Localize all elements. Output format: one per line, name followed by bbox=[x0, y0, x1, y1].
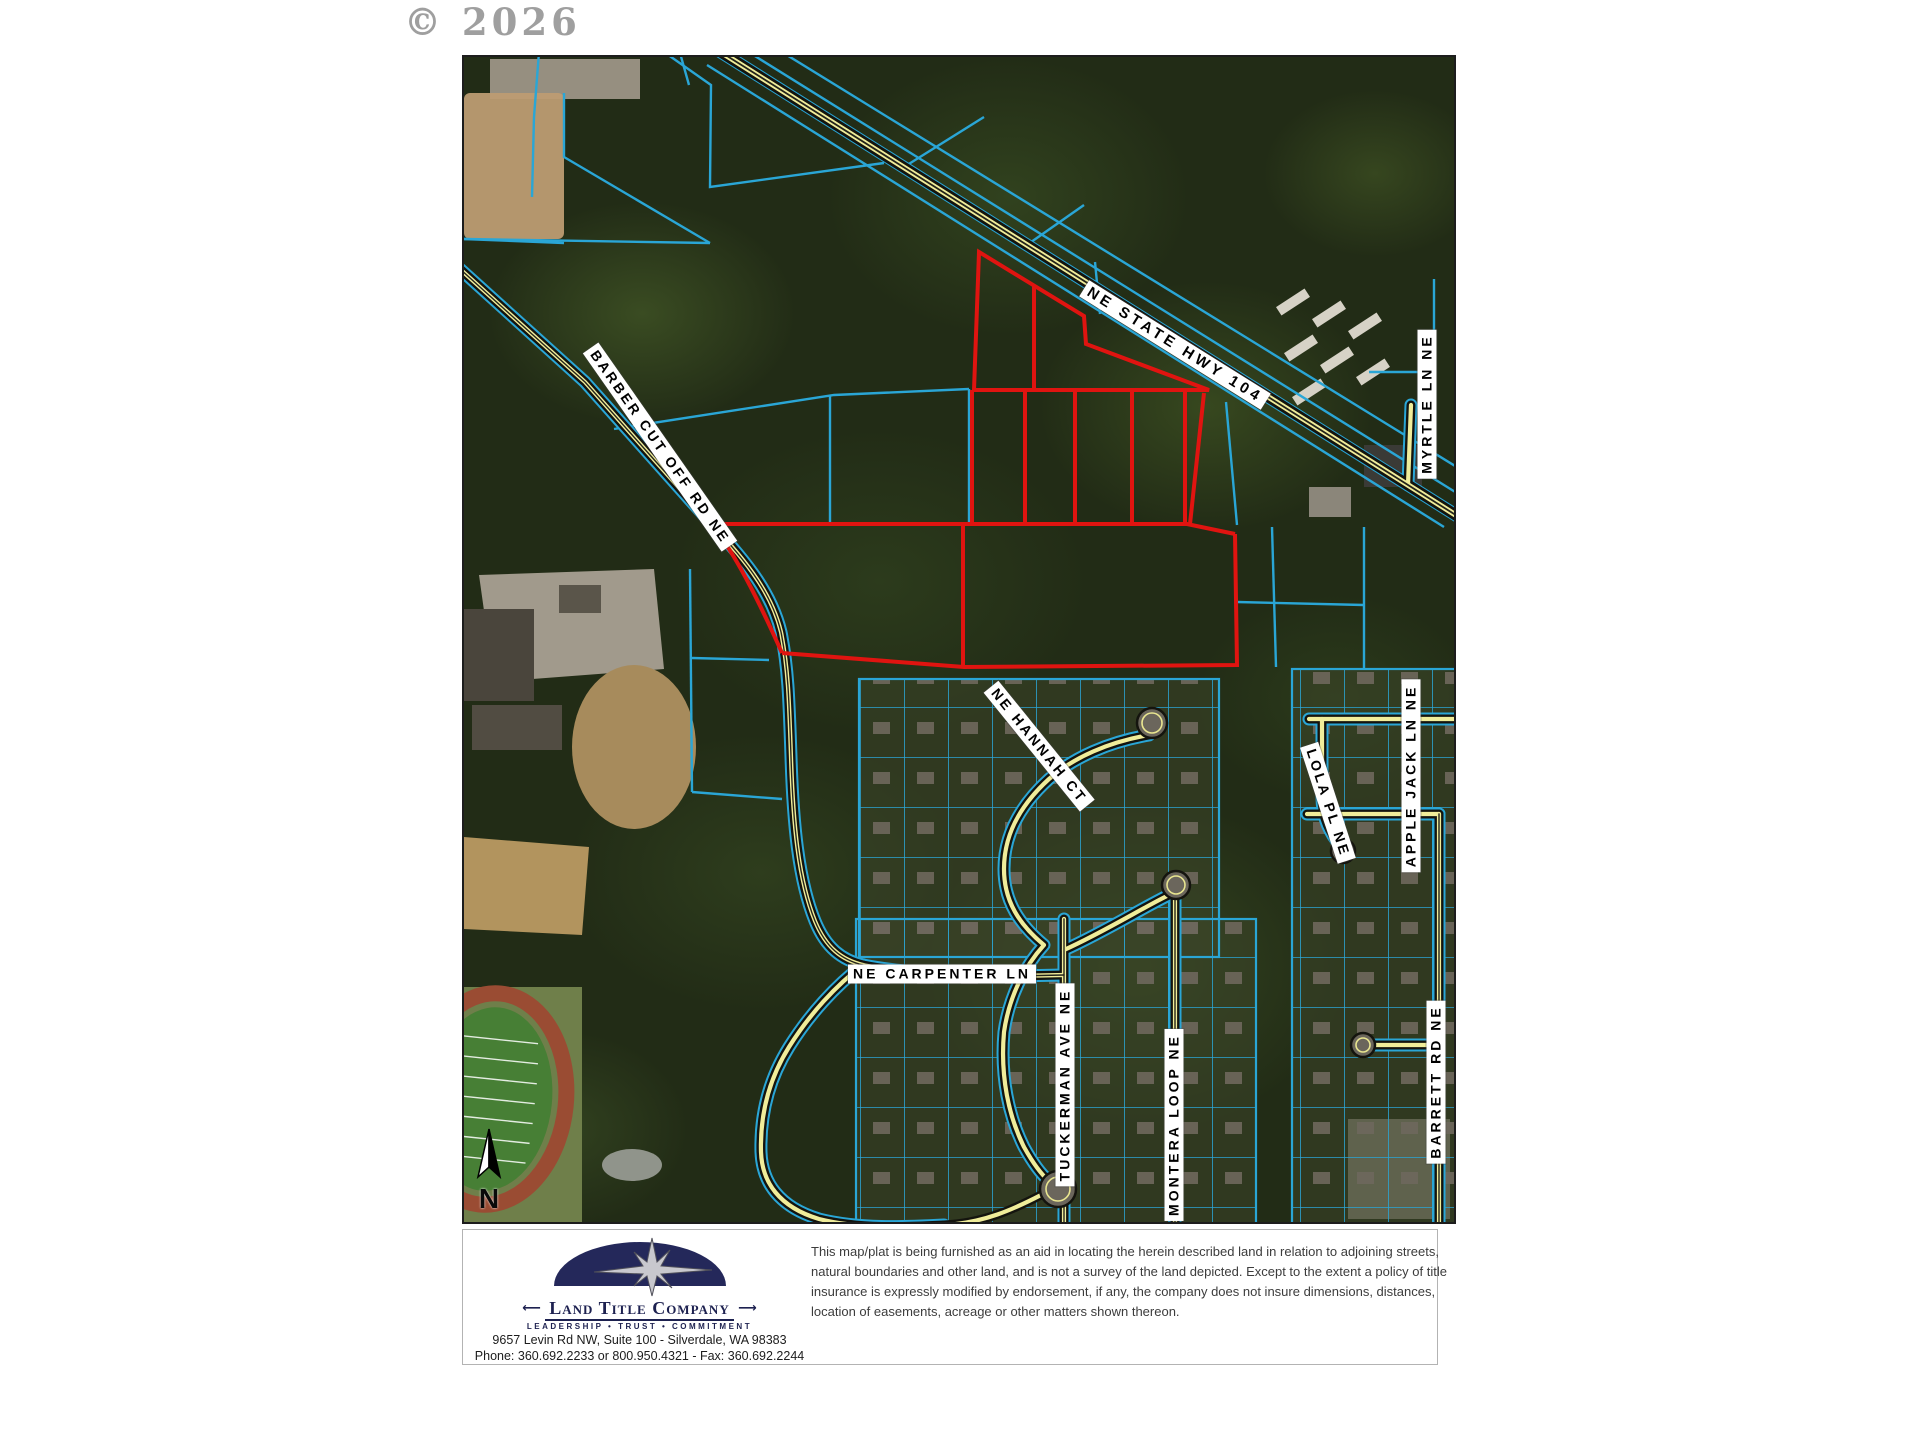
copyright-watermark: © 2026 bbox=[404, 0, 581, 44]
company-phone-fax: Phone: 360.692.2233 or 800.950.4321 - Fa… bbox=[467, 1349, 812, 1364]
road-label-tuckerman-ave-ne: TUCKERMAN AVE NE bbox=[1056, 984, 1075, 1187]
land-title-company-logo: ⟵ Land Title Company ⟶ LEADERSHIP • TRUS… bbox=[467, 1234, 812, 1364]
road-label-ne-carpenter-ln: NE CARPENTER LN bbox=[848, 965, 1036, 984]
arrow-right-icon: ⟶ bbox=[738, 1301, 757, 1316]
north-label: N bbox=[476, 1183, 502, 1215]
company-address: 9657 Levin Rd NW, Suite 100 - Silverdale… bbox=[467, 1333, 812, 1348]
road-label-apple-jack-ln-ne: APPLE JACK LN NE bbox=[1402, 680, 1421, 873]
page: { "watermark": "© 2026", "map": { "north… bbox=[0, 0, 1920, 1440]
subdivision-lots bbox=[856, 669, 1456, 1224]
mobile-home-park bbox=[1276, 289, 1390, 406]
map-artwork bbox=[464, 57, 1456, 1224]
road-label-barrett-rd-ne: BARRETT RD NE bbox=[1427, 1000, 1446, 1163]
arrow-left-icon: ⟵ bbox=[522, 1301, 541, 1316]
map-disclaimer-text: This map/plat is being furnished as an a… bbox=[811, 1242, 1451, 1322]
subject-property-outline bbox=[710, 252, 1237, 667]
company-name: Land Title Company bbox=[545, 1298, 733, 1321]
road-label-myrtle-ln-ne: MYRTLE LN NE bbox=[1418, 329, 1437, 478]
compass-star-logo-icon bbox=[540, 1234, 740, 1298]
company-tagline: LEADERSHIP • TRUST • COMMITMENT bbox=[467, 1321, 812, 1332]
title-company-footer: ⟵ Land Title Company ⟶ LEADERSHIP • TRUS… bbox=[462, 1229, 1438, 1365]
road-label-montera-loop-ne: MONTERA LOOP NE bbox=[1165, 1029, 1184, 1221]
aerial-plat-map: NE STATE HWY 104 BARBER CUT OFF RD NE MY… bbox=[462, 55, 1456, 1224]
